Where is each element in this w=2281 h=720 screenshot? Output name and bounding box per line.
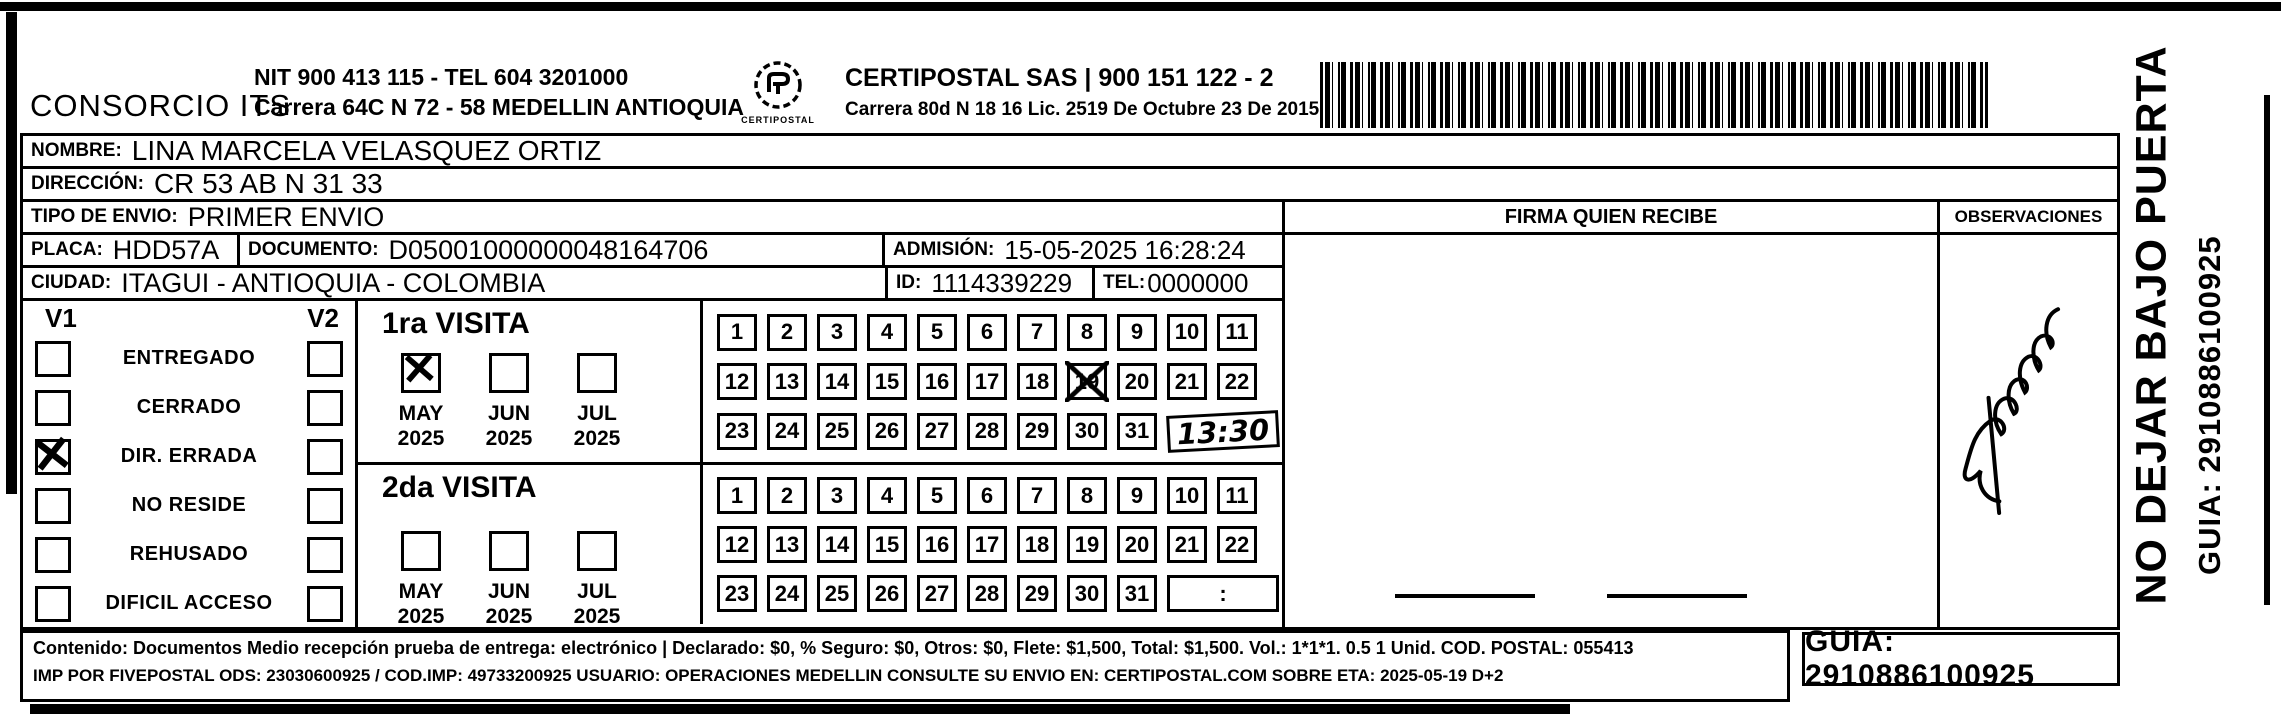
certipostal-logo: CERTIPOSTAL bbox=[733, 58, 823, 125]
scan-artifact-right bbox=[2264, 95, 2270, 605]
day-box-26: 26 bbox=[867, 575, 907, 612]
v1-label: V1 bbox=[45, 303, 77, 334]
day-box-12: 12 bbox=[717, 526, 757, 563]
day-box-3: 3 bbox=[817, 477, 857, 514]
day-row: 232425262728293031: bbox=[717, 575, 1282, 612]
documento-label: DOCUMENTO: bbox=[248, 239, 379, 261]
day-box-24: 24 bbox=[767, 575, 807, 612]
day-box-16: 16 bbox=[917, 526, 957, 563]
month-label: JUL bbox=[566, 401, 628, 426]
no-dejar-bajo-puerta-text: NO DEJAR BAJO PUERTA bbox=[2128, 105, 2183, 605]
day-box-17: 17 bbox=[967, 363, 1007, 400]
day-box-19: 19 bbox=[1067, 363, 1107, 400]
status-row-dificil-acceso: DIFICIL ACCESO bbox=[23, 579, 355, 628]
first-visit-section: 1ra VISITA MAY 2025 JUN 2025 bbox=[358, 301, 1282, 465]
tipo-envio-label: TIPO DE ENVIO: bbox=[31, 206, 178, 228]
certipostal-logo-icon bbox=[751, 58, 805, 112]
month-year: 2025 bbox=[390, 604, 452, 629]
documento-value: D05001000000048164706 bbox=[389, 235, 709, 265]
day-box-27: 27 bbox=[917, 575, 957, 612]
first-visit-title: 1ra VISITA bbox=[358, 301, 700, 341]
checkbox-entregado-v1 bbox=[35, 341, 71, 377]
ciudad-label: CIUDAD: bbox=[31, 272, 111, 294]
footer-box: Contenido: Documentos Medio recepción pr… bbox=[20, 630, 1790, 702]
ciudad-cell: CIUDAD: ITAGUI - ANTIOQUIA - COLOMBIA bbox=[23, 268, 888, 298]
day-box-1: 1 bbox=[717, 477, 757, 514]
signature-icon bbox=[1926, 277, 2124, 520]
day-box-27: 27 bbox=[917, 413, 957, 450]
certipostal-address: Carrera 80d N 18 16 Lic. 2519 De Octubre… bbox=[845, 99, 1319, 121]
id-cell: ID: 1114339229 bbox=[888, 268, 1095, 298]
day-box-28: 28 bbox=[967, 413, 1007, 450]
month-label: JUN bbox=[478, 579, 540, 604]
status-row-cerrado: CERRADO bbox=[23, 383, 355, 432]
status-row-entregado: ENTREGADO bbox=[23, 334, 355, 383]
day-box-25: 25 bbox=[817, 575, 857, 612]
ciudad-value: ITAGUI - ANTIOQUIA - COLOMBIA bbox=[121, 268, 545, 298]
day-row: 1234567891011 bbox=[717, 477, 1282, 514]
day-box-30: 30 bbox=[1067, 575, 1107, 612]
day-box-2: 2 bbox=[767, 314, 807, 351]
checkbox-first-may bbox=[401, 353, 441, 393]
day-box-22: 22 bbox=[1217, 363, 1257, 400]
status-label: REHUSADO bbox=[71, 543, 307, 566]
firma-dash-line bbox=[1607, 594, 1747, 598]
day-box-22: 22 bbox=[1217, 526, 1257, 563]
day-box-4: 4 bbox=[867, 314, 907, 351]
checkbox-dir-errada-v1 bbox=[35, 439, 71, 475]
status-label: DIR. ERRADA bbox=[71, 445, 307, 468]
status-label: CERRADO bbox=[71, 396, 307, 419]
checkbox-rehusado-v1 bbox=[35, 537, 71, 573]
day-box-6: 6 bbox=[967, 314, 1007, 351]
status-label: ENTREGADO bbox=[71, 347, 307, 370]
guia-vertical-text: GUIA: 2910886100925 bbox=[2192, 115, 2232, 575]
second-visit-title: 2da VISITA bbox=[358, 465, 700, 505]
checkbox-no-reside-v2 bbox=[307, 488, 343, 524]
day-box-6: 6 bbox=[967, 477, 1007, 514]
day-box-3: 3 bbox=[817, 314, 857, 351]
day-box-28: 28 bbox=[967, 575, 1007, 612]
day-box-15: 15 bbox=[867, 363, 907, 400]
day-box-20: 20 bbox=[1117, 526, 1157, 563]
day-box-13: 13 bbox=[767, 363, 807, 400]
nombre-row: NOMBRE: LINA MARCELA VELASQUEZ ORTIZ bbox=[23, 136, 2117, 169]
second-visit-months: 2da VISITA MAY 2025 JUN 2025 bbox=[358, 465, 703, 624]
status-section: V1 V2 ENTREGADO CERRADO DIR. ERRADA NO R… bbox=[23, 301, 358, 627]
day-box-7: 7 bbox=[1017, 477, 1057, 514]
delivery-slip-scan: CONSORCIO ITS NIT 900 413 115 - TEL 604 … bbox=[0, 0, 2281, 720]
ciudad-id-tel-row: CIUDAD: ITAGUI - ANTIOQUIA - COLOMBIA ID… bbox=[23, 268, 1285, 301]
nombre-label: NOMBRE: bbox=[31, 140, 122, 162]
first-visit-months: 1ra VISITA MAY 2025 JUN 2025 bbox=[358, 301, 703, 462]
day-box-8: 8 bbox=[1067, 477, 1107, 514]
day-box-24: 24 bbox=[767, 413, 807, 450]
checkbox-cerrado-v2 bbox=[307, 390, 343, 426]
id-value: 1114339229 bbox=[931, 268, 1072, 298]
checkbox-first-jul bbox=[577, 353, 617, 393]
second-visit-day-grid: 1234567891011 1213141516171819202122 232… bbox=[703, 465, 1282, 624]
day-box-17: 17 bbox=[967, 526, 1007, 563]
id-label: ID: bbox=[896, 272, 921, 294]
visit-columns-header: V1 V2 bbox=[23, 301, 355, 334]
day-box-7: 7 bbox=[1017, 314, 1057, 351]
company-nit-line: NIT 900 413 115 - TEL 604 3201000 bbox=[254, 62, 744, 92]
month-year: 2025 bbox=[566, 426, 628, 451]
day-box-29: 29 bbox=[1017, 575, 1057, 612]
second-visit-section: 2da VISITA MAY 2025 JUN 2025 bbox=[358, 465, 1282, 624]
day-box-29: 29 bbox=[1017, 413, 1057, 450]
day-row: 23242526272829303113:30 bbox=[717, 413, 1282, 450]
tel-label: TEL: bbox=[1103, 272, 1145, 294]
visits-section: 1ra VISITA MAY 2025 JUN 2025 bbox=[358, 301, 1285, 627]
firma-column: FIRMA QUIEN RECIBE bbox=[1285, 202, 1940, 627]
day-box-18: 18 bbox=[1017, 526, 1057, 563]
day-box-31: 31 bbox=[1117, 413, 1157, 450]
day-box-15: 15 bbox=[867, 526, 907, 563]
checkbox-entregado-v2 bbox=[307, 341, 343, 377]
checkbox-first-jun bbox=[489, 353, 529, 393]
footer-line-2: IMP POR FIVEPOSTAL ODS: 23030600925 / CO… bbox=[33, 666, 1777, 686]
day-box-11: 11 bbox=[1217, 314, 1257, 351]
first-visit-day-grid: 1234567891011 1213141516171819202122 232… bbox=[703, 301, 1282, 462]
status-label: NO RESIDE bbox=[71, 494, 307, 517]
barcode bbox=[1320, 62, 1988, 128]
day-box-19: 19 bbox=[1067, 526, 1107, 563]
documento-cell: DOCUMENTO: D05001000000048164706 bbox=[240, 235, 885, 265]
footer-line-1: Contenido: Documentos Medio recepción pr… bbox=[33, 638, 1777, 659]
placa-documento-row: PLACA: HDD57A DOCUMENTO: D05001000000048… bbox=[23, 235, 1285, 268]
direccion-value: CR 53 AB N 31 33 bbox=[154, 169, 383, 200]
observaciones-column: OBSERVACIONES bbox=[1940, 202, 2117, 627]
checkbox-second-may bbox=[401, 531, 441, 571]
status-row-dir-errada: DIR. ERRADA bbox=[23, 432, 355, 481]
day-box-14: 14 bbox=[817, 526, 857, 563]
month-label: MAY bbox=[390, 401, 452, 426]
status-label: DIFICIL ACCESO bbox=[71, 592, 307, 615]
day-box-2: 2 bbox=[767, 477, 807, 514]
month-label: MAY bbox=[390, 579, 452, 604]
nombre-value: LINA MARCELA VELASQUEZ ORTIZ bbox=[132, 136, 601, 167]
placa-value: HDD57A bbox=[113, 235, 220, 265]
tipo-envio-row: TIPO DE ENVIO: PRIMER ENVIO bbox=[23, 202, 1285, 235]
guia-number-box: GUIA: 2910886100925 bbox=[1802, 632, 2120, 686]
tel-cell: TEL: 0000000 bbox=[1095, 268, 1282, 298]
checkbox-dificil-acceso-v1 bbox=[35, 586, 71, 622]
tipo-envio-value: PRIMER ENVIO bbox=[188, 202, 385, 233]
direccion-label: DIRECCIÓN: bbox=[31, 173, 144, 195]
day-box-14: 14 bbox=[817, 363, 857, 400]
checkbox-cerrado-v1 bbox=[35, 390, 71, 426]
company-address-line: Carrera 64C N 72 - 58 MEDELLIN ANTIOQUIA bbox=[254, 92, 744, 122]
second-visit-month-row: MAY 2025 JUN 2025 JUL 2025 bbox=[358, 531, 700, 629]
firma-dash-line bbox=[1395, 594, 1535, 598]
day-box-23: 23 bbox=[717, 413, 757, 450]
day-box-18: 18 bbox=[1017, 363, 1057, 400]
day-box-20: 20 bbox=[1117, 363, 1157, 400]
first-visit-month-row: MAY 2025 JUN 2025 JUL 2025 bbox=[358, 353, 700, 451]
day-box-23: 23 bbox=[717, 575, 757, 612]
certipostal-name: CERTIPOSTAL SAS | 900 151 122 - 2 bbox=[845, 64, 1319, 93]
day-box-31: 31 bbox=[1117, 575, 1157, 612]
day-box-10: 10 bbox=[1167, 477, 1207, 514]
month-year: 2025 bbox=[478, 604, 540, 629]
placa-label: PLACA: bbox=[31, 239, 103, 261]
month-may: MAY 2025 bbox=[390, 531, 452, 629]
day-box-25: 25 bbox=[817, 413, 857, 450]
day-box-11: 11 bbox=[1217, 477, 1257, 514]
placa-cell: PLACA: HDD57A bbox=[23, 235, 240, 265]
visit-time-box: : bbox=[1167, 575, 1279, 612]
form-body: NOMBRE: LINA MARCELA VELASQUEZ ORTIZ DIR… bbox=[20, 133, 2120, 630]
visit-time-box: 13:30 bbox=[1166, 410, 1280, 453]
month-year: 2025 bbox=[566, 604, 628, 629]
checkbox-dificil-acceso-v2 bbox=[307, 586, 343, 622]
day-box-8: 8 bbox=[1067, 314, 1107, 351]
month-jul: JUL 2025 bbox=[566, 531, 628, 629]
tel-value: 0000000 bbox=[1147, 268, 1248, 298]
day-box-26: 26 bbox=[867, 413, 907, 450]
v2-label: V2 bbox=[307, 303, 339, 334]
company-contact-block: NIT 900 413 115 - TEL 604 3201000 Carrer… bbox=[254, 62, 744, 122]
day-box-21: 21 bbox=[1167, 363, 1207, 400]
admision-cell: ADMISIÓN: 15-05-2025 16:28:24 bbox=[885, 235, 1282, 265]
day-box-1: 1 bbox=[717, 314, 757, 351]
day-box-9: 9 bbox=[1117, 477, 1157, 514]
month-year: 2025 bbox=[390, 426, 452, 451]
month-may: MAY 2025 bbox=[390, 353, 452, 451]
direccion-row: DIRECCIÓN: CR 53 AB N 31 33 bbox=[23, 169, 2117, 202]
day-box-9: 9 bbox=[1117, 314, 1157, 351]
checkbox-second-jul bbox=[577, 531, 617, 571]
observaciones-header: OBSERVACIONES bbox=[1940, 202, 2117, 235]
day-box-10: 10 bbox=[1167, 314, 1207, 351]
admision-value: 15-05-2025 16:28:24 bbox=[1004, 235, 1245, 265]
day-row: 1213141516171819202122 bbox=[717, 363, 1282, 400]
status-row-rehusado: REHUSADO bbox=[23, 530, 355, 579]
day-box-4: 4 bbox=[867, 477, 907, 514]
scan-artifact-top bbox=[0, 2, 2281, 11]
checkbox-dir-errada-v2 bbox=[307, 439, 343, 475]
scan-artifact-left bbox=[6, 12, 17, 494]
day-box-13: 13 bbox=[767, 526, 807, 563]
checkbox-no-reside-v1 bbox=[35, 488, 71, 524]
checkbox-rehusado-v2 bbox=[307, 537, 343, 573]
month-year: 2025 bbox=[478, 426, 540, 451]
firma-header: FIRMA QUIEN RECIBE bbox=[1285, 202, 1937, 235]
month-jun: JUN 2025 bbox=[478, 353, 540, 451]
month-label: JUN bbox=[478, 401, 540, 426]
month-label: JUL bbox=[566, 579, 628, 604]
certipostal-block: CERTIPOSTAL SAS | 900 151 122 - 2 Carrer… bbox=[845, 64, 1319, 121]
company-name: CONSORCIO ITS bbox=[30, 88, 291, 124]
logo-caption: CERTIPOSTAL bbox=[733, 115, 823, 125]
scan-artifact-bottom bbox=[30, 704, 1570, 714]
day-box-5: 5 bbox=[917, 314, 957, 351]
day-box-5: 5 bbox=[917, 477, 957, 514]
month-jun: JUN 2025 bbox=[478, 531, 540, 629]
admision-label: ADMISIÓN: bbox=[893, 239, 994, 261]
day-box-16: 16 bbox=[917, 363, 957, 400]
signature-scribble bbox=[1926, 277, 2128, 522]
day-box-12: 12 bbox=[717, 363, 757, 400]
checkbox-second-jun bbox=[489, 531, 529, 571]
day-row: 1213141516171819202122 bbox=[717, 526, 1282, 563]
day-box-30: 30 bbox=[1067, 413, 1107, 450]
status-row-no-reside: NO RESIDE bbox=[23, 481, 355, 530]
month-jul: JUL 2025 bbox=[566, 353, 628, 451]
day-box-21: 21 bbox=[1167, 526, 1207, 563]
day-row: 1234567891011 bbox=[717, 314, 1282, 351]
